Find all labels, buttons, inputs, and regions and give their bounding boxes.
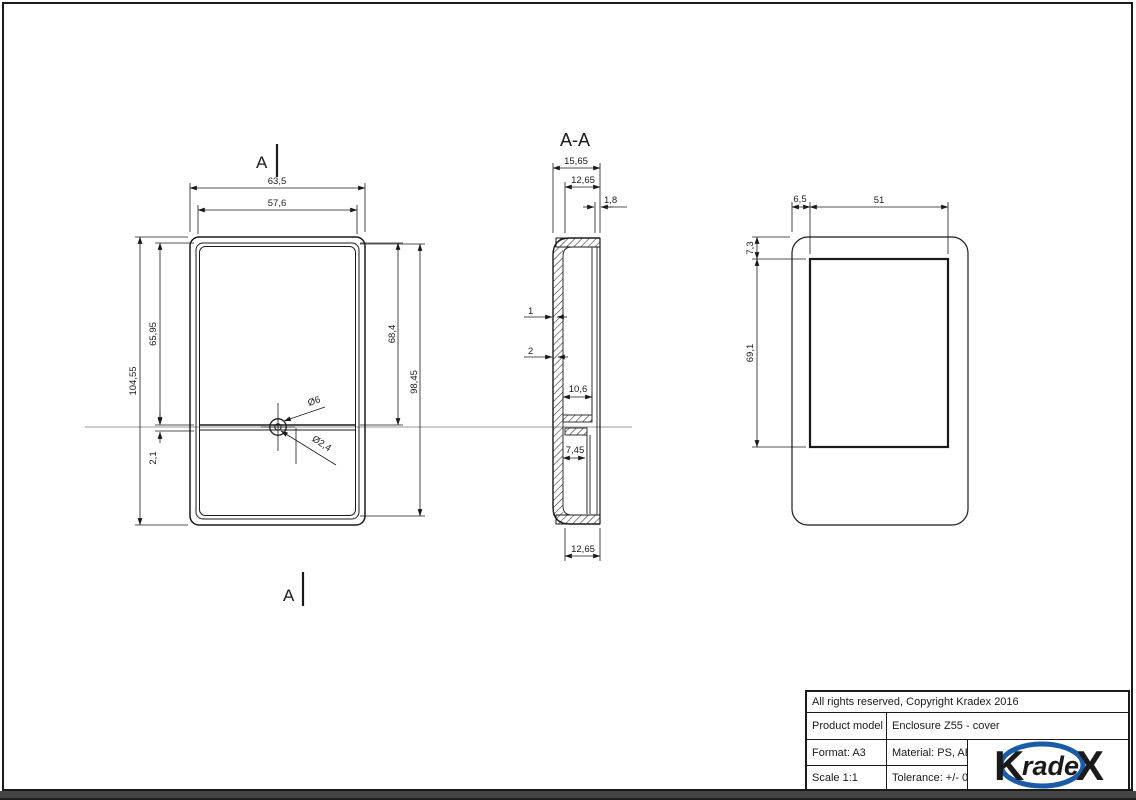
kradex-logo-k: K <box>994 742 1024 789</box>
section-view-dimensions: 15,65 12,65 1,8 1 2 10,6 7,45 <box>524 156 627 561</box>
title-block-format: Format: A3 <box>807 740 887 766</box>
drawing-canvas: A A 63,5 <box>0 0 1136 800</box>
product-value-text: Enclosure Z55 - cover <box>892 720 1000 732</box>
front-view-dimensions: 63,5 57,6 104,55 65,95 2,1 68,4 <box>128 176 425 525</box>
title-block-product-label: Product model <box>807 713 887 740</box>
rear-view: 6,5 51 7,3 69,1 <box>745 194 968 525</box>
dim-bottom-depth: 12,65 <box>571 544 595 555</box>
dim-lip: 1,8 <box>604 195 617 206</box>
dim-top-offset: 7,3 <box>745 241 756 254</box>
rear-view-dimensions: 6,5 51 7,3 69,1 <box>745 194 948 447</box>
rear-view-outline <box>792 237 968 525</box>
dim-panel-width: 51 <box>874 195 885 206</box>
title-block-logo-cell: K rade X <box>968 740 1128 789</box>
dim-inner-depth: 12,65 <box>571 175 595 186</box>
section-view: A-A 15,65 12,65 <box>524 130 627 561</box>
front-view: A A 63,5 <box>128 144 425 606</box>
title-block-material: Material: PS, ABS <box>887 740 968 766</box>
dim-right-total: 98,45 <box>409 370 420 394</box>
dim-step: 2,1 <box>148 451 159 464</box>
scale-text: Scale 1:1 <box>812 772 858 784</box>
dim-upper-height: 65,95 <box>148 322 159 346</box>
sheet-border <box>3 3 1132 790</box>
window-bottom-edge <box>0 791 1136 800</box>
kradex-logo-rade: rade <box>1022 751 1079 781</box>
section-marker-bottom-label: A <box>283 586 295 605</box>
title-block-product-value: Enclosure Z55 - cover <box>887 713 1128 740</box>
copyright-text: All rights reserved, Copyright Kradex 20… <box>812 696 1019 708</box>
front-view-hole <box>261 403 296 464</box>
section-marker-bottom: A <box>283 572 303 606</box>
dim-boss: 7,45 <box>566 445 585 456</box>
tolerance-text: Tolerance: +/- 0.6 <box>892 772 968 784</box>
section-marker-top-label: A <box>256 153 268 172</box>
dim-side-offset: 6,5 <box>793 194 806 205</box>
product-label-text: Product model <box>812 720 883 732</box>
section-view-outline <box>553 238 600 524</box>
dim-wall-bottom: 2 <box>528 346 533 357</box>
dim-outer-depth: 15,65 <box>564 156 588 167</box>
dim-shelf: 10,6 <box>569 384 588 395</box>
title-block-scale: Scale 1:1 <box>807 766 887 789</box>
title-block-tolerance: Tolerance: +/- 0.6 <box>887 766 968 789</box>
front-view-outline <box>190 237 365 525</box>
dim-inner-width: 57,6 <box>268 198 287 209</box>
section-marker-top: A <box>256 144 277 177</box>
dim-panel-height: 69,1 <box>745 344 756 363</box>
dim-right-upper: 68,4 <box>387 325 398 344</box>
material-text: Material: PS, ABS <box>892 747 968 759</box>
kradex-logo-x: X <box>1076 742 1104 789</box>
title-block: All rights reserved, Copyright Kradex 20… <box>805 690 1130 791</box>
title-block-copyright: All rights reserved, Copyright Kradex 20… <box>807 692 1128 713</box>
section-view-title: A-A <box>560 130 590 150</box>
format-text: Format: A3 <box>812 747 866 759</box>
dim-outer-width: 63,5 <box>268 176 287 187</box>
dim-wall-top: 1 <box>528 306 533 317</box>
kradex-logo: K rade X <box>978 740 1118 789</box>
dim-total-height: 104,55 <box>128 366 139 395</box>
dim-hole-outer: Ø6 <box>306 394 322 409</box>
